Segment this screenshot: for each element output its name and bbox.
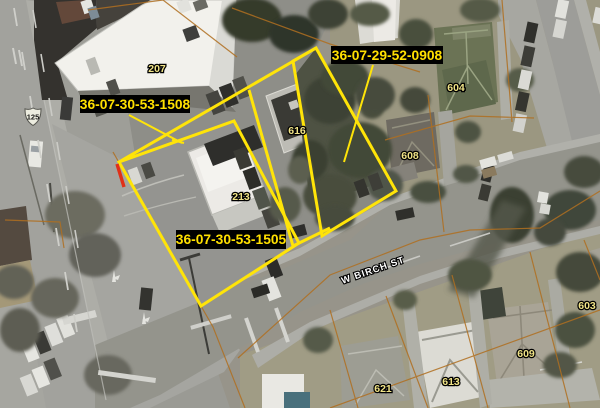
svg-text:621: 621: [374, 383, 392, 395]
svg-text:609: 609: [517, 348, 535, 360]
svg-text:603: 603: [578, 300, 596, 312]
svg-text:608: 608: [401, 150, 419, 162]
svg-text:36-07-30-53-1508: 36-07-30-53-1508: [80, 97, 191, 112]
svg-text:125: 125: [27, 113, 40, 122]
svg-text:36-07-30-53-1505: 36-07-30-53-1505: [176, 232, 287, 247]
svg-text:613: 613: [442, 376, 460, 388]
svg-text:616: 616: [288, 125, 306, 137]
svg-text:213: 213: [232, 191, 250, 203]
svg-text:604: 604: [447, 82, 465, 94]
svg-text:36-07-29-52-0908: 36-07-29-52-0908: [332, 48, 443, 63]
svg-text:207: 207: [148, 63, 166, 75]
